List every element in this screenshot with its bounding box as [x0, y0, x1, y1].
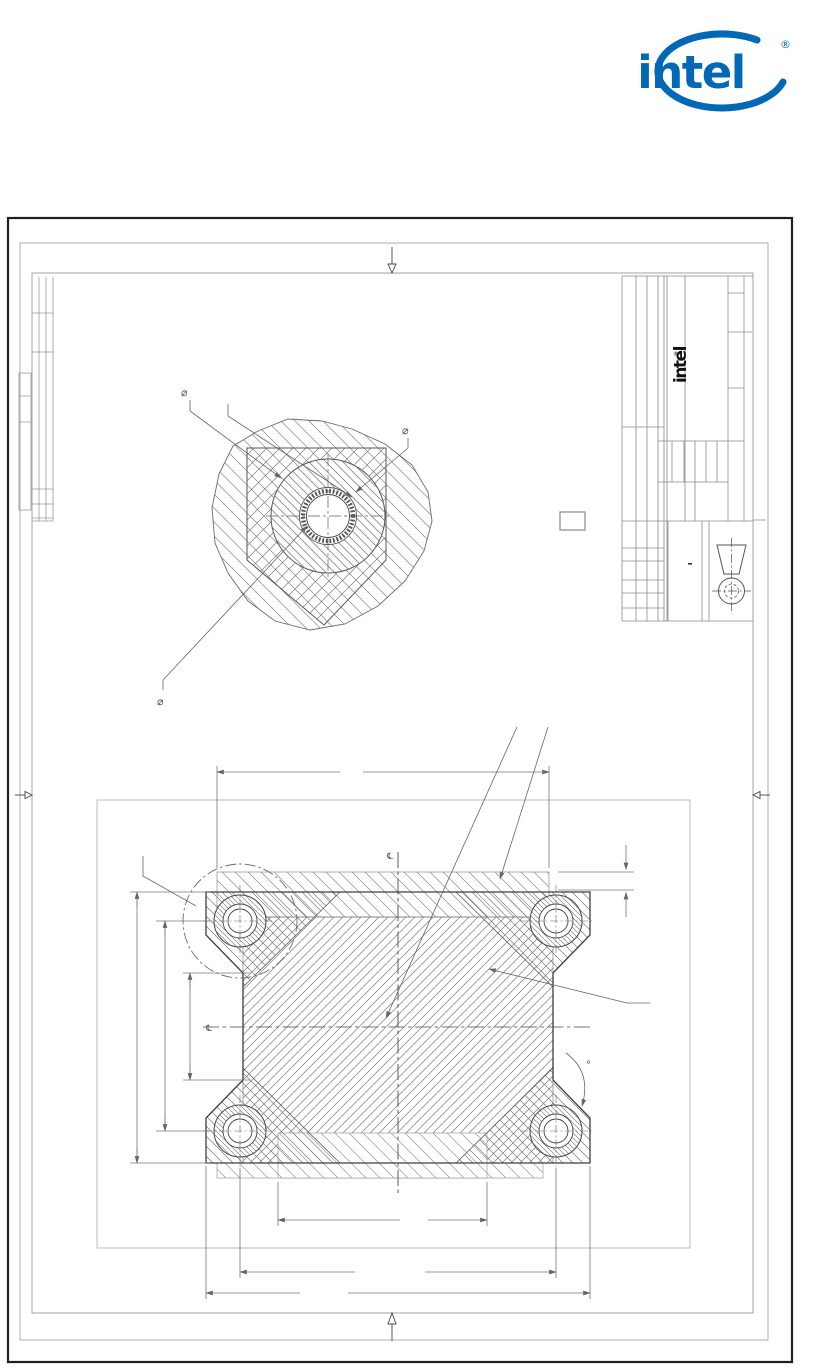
title-block-grid — [622, 276, 753, 621]
centerline-symbol-left: ℄ — [205, 1024, 212, 1034]
third-angle-projection-symbol — [712, 538, 751, 614]
fold-mark-box — [19, 373, 31, 510]
revision-table — [19, 277, 53, 521]
dim-ext — [156, 921, 210, 1131]
dim-strip-width — [217, 766, 549, 868]
intel-logo-text: intel — [637, 46, 744, 99]
intel-logo-registered: ® — [780, 38, 791, 51]
degree-label: ° — [586, 1060, 591, 1071]
centering-mark-left — [15, 792, 32, 799]
title-block-registered: ® — [673, 351, 679, 358]
leader-to-gasket — [500, 727, 548, 879]
diameter-label-3: ⌀ — [157, 695, 164, 708]
drawing-page: intel ® intel ® — [0, 0, 820, 1368]
dim-ext — [558, 872, 634, 890]
dim-plate-height — [130, 892, 210, 1163]
title-block: intel ® — [560, 276, 753, 621]
dim-ext — [130, 892, 210, 1163]
title-block-intel-logo: intel ® — [671, 346, 691, 383]
intel-logo: intel ® — [637, 34, 791, 108]
section-view: ℄ ℄ ° — [97, 727, 690, 1299]
dim-ext — [183, 973, 250, 1080]
dim-hole-span — [156, 921, 210, 1131]
title-block-tick — [688, 563, 692, 565]
centering-mark-bottom — [388, 1313, 396, 1341]
fold-mark-dividers — [19, 396, 31, 422]
diameter-label-2: ⌀ — [402, 424, 409, 437]
dim-ext — [278, 1182, 487, 1226]
centerline-symbol-top: ℄ — [386, 852, 393, 862]
centering-mark-right — [753, 792, 770, 799]
drawing-sheet-svg: intel ® intel ® — [0, 0, 820, 1368]
dim-recess-width — [278, 1182, 487, 1226]
page-border — [8, 218, 792, 1362]
diameter-label-1: ⌀ — [181, 386, 188, 399]
small-reference-box — [560, 512, 585, 530]
revision-table-lines — [32, 277, 53, 521]
detail-view: ⌀ ⌀ ⌀ — [157, 386, 432, 708]
sheet-frame — [8, 218, 792, 1362]
dim-inner-span — [183, 973, 250, 1080]
dim-ext — [217, 766, 549, 868]
centering-mark-top — [388, 247, 396, 273]
